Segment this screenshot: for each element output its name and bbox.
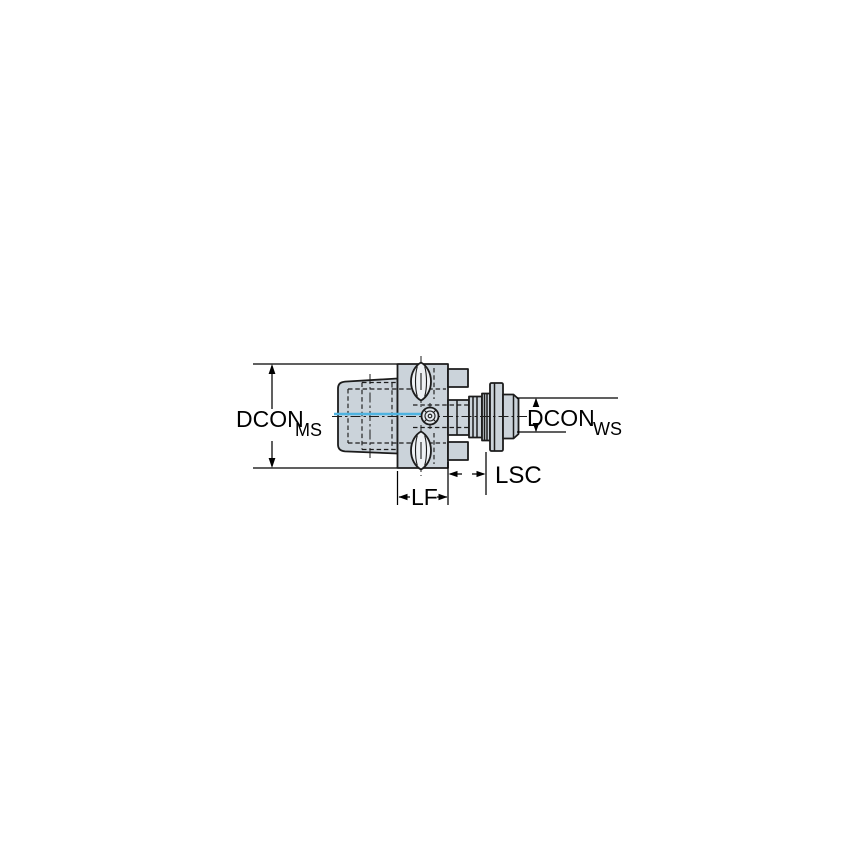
lsc-arrowhead-left bbox=[449, 471, 458, 477]
lsc-label: LSC bbox=[495, 462, 542, 489]
dcon-ms-subscript: MS bbox=[295, 420, 322, 440]
dcon-ms-label: DCON bbox=[236, 406, 304, 432]
dcon-ms-arrowhead-up bbox=[269, 364, 276, 374]
lf-arrowhead-left bbox=[399, 494, 408, 500]
lf-arrowhead-right bbox=[439, 494, 448, 500]
clamp-screw bbox=[422, 408, 439, 425]
lf-label: LF bbox=[411, 484, 438, 510]
lsc-arrowhead-right bbox=[477, 471, 486, 477]
dcon-ws-label: DCON bbox=[527, 405, 595, 431]
bottom-drive-tab bbox=[448, 442, 468, 460]
dcon-ws-subscript: WS bbox=[593, 419, 622, 439]
top-drive-tab bbox=[448, 369, 468, 387]
drawing-canvas: DCON MS DCON WS LSC LF bbox=[0, 0, 854, 854]
technical-drawing: DCON MS DCON WS LSC LF bbox=[0, 0, 854, 854]
dcon-ms-arrowhead-down bbox=[269, 458, 276, 468]
